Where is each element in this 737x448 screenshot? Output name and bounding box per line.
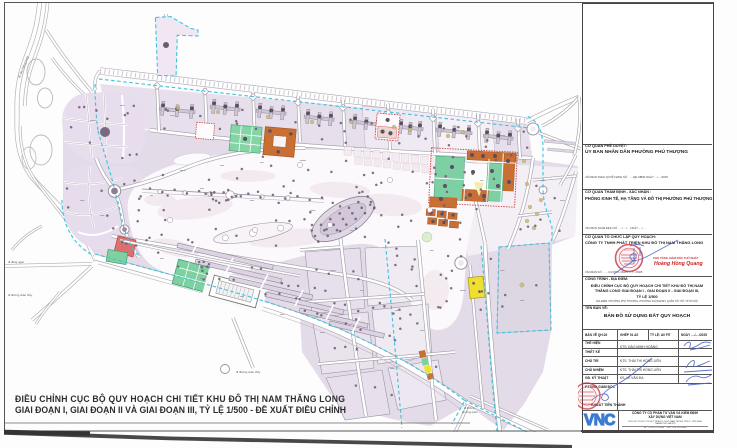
svg-text:đi đường xuân thủy: đi đường xuân thủy [236,370,261,374]
svg-text:đi đường xuân thủy: đi đường xuân thủy [8,293,33,297]
svg-text:đi đường: đi đường [464,406,475,410]
svg-text:đi đông ngạc: đi đông ngạc [8,260,25,264]
svg-text:lạc long quân: lạc long quân [462,410,478,414]
